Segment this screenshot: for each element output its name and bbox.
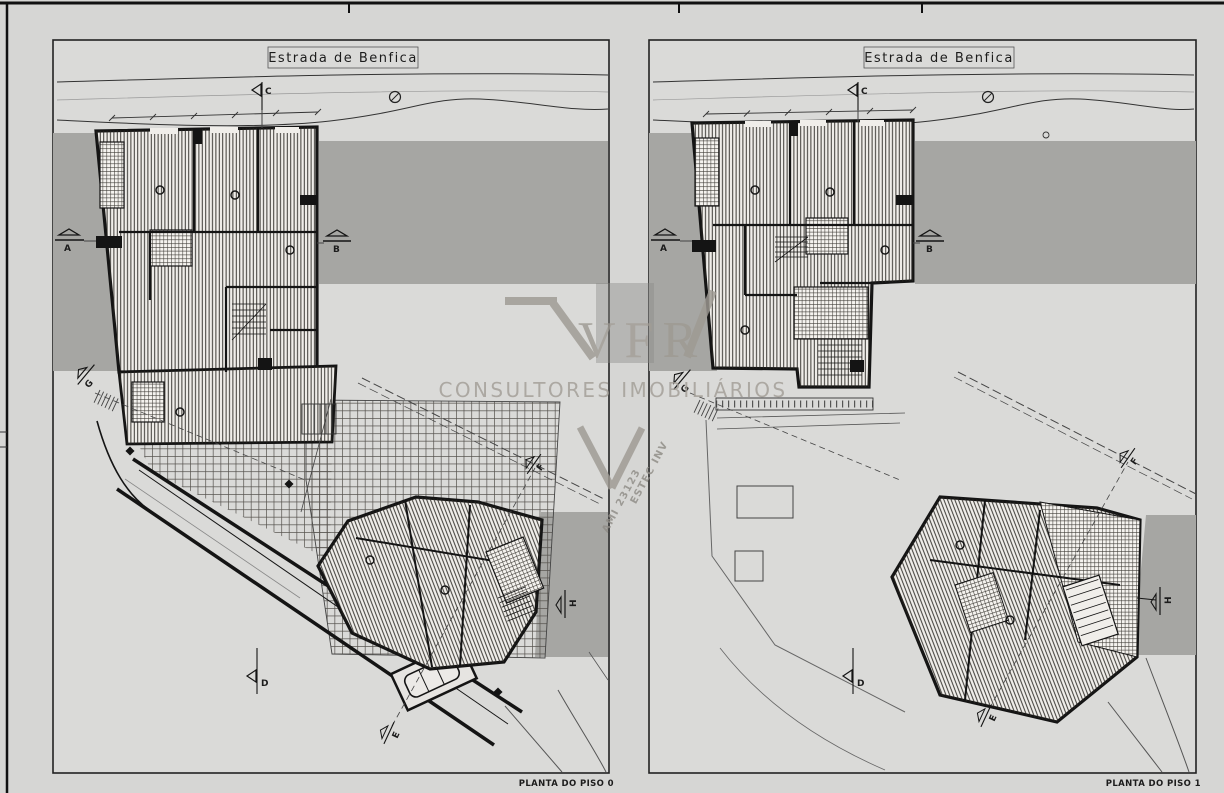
blueprint-sheet: Estrada de Benfica [0,0,1224,793]
svg-text:H: H [569,599,579,607]
floor-plan-drawing: Estrada de Benfica [0,0,1224,793]
svg-text:C: C [265,87,272,97]
neighbor-band-right [319,141,608,284]
right-panel: Estrada de Benfica [649,40,1201,789]
street-label: Estrada de Benfica [864,51,1014,66]
svg-text:B: B [333,245,340,255]
watermark-subtitle: CONSULTORES IMOBILIÁRIOS [438,378,787,402]
upper-building [96,127,336,444]
panel-caption: PLANTA DO PISO 1 [1106,779,1201,789]
street-label: Estrada de Benfica [268,51,418,66]
panel-caption: PLANTA DO PISO 0 [519,779,614,789]
svg-text:H: H [1164,596,1174,604]
svg-text:D: D [857,679,864,689]
left-panel: Estrada de Benfica [53,40,614,789]
street-label-box: Estrada de Benfica [268,47,418,68]
street-label-box: Estrada de Benfica [864,47,1014,68]
neighbor-band-right [915,141,1196,284]
svg-text:D: D [261,679,268,689]
svg-text:A: A [64,244,71,254]
watermark-brand: VFR [578,312,706,369]
svg-text:C: C [861,87,868,97]
door-notches [150,127,299,134]
svg-text:B: B [926,245,933,255]
door-notches [745,120,884,127]
svg-text:A: A [660,244,667,254]
